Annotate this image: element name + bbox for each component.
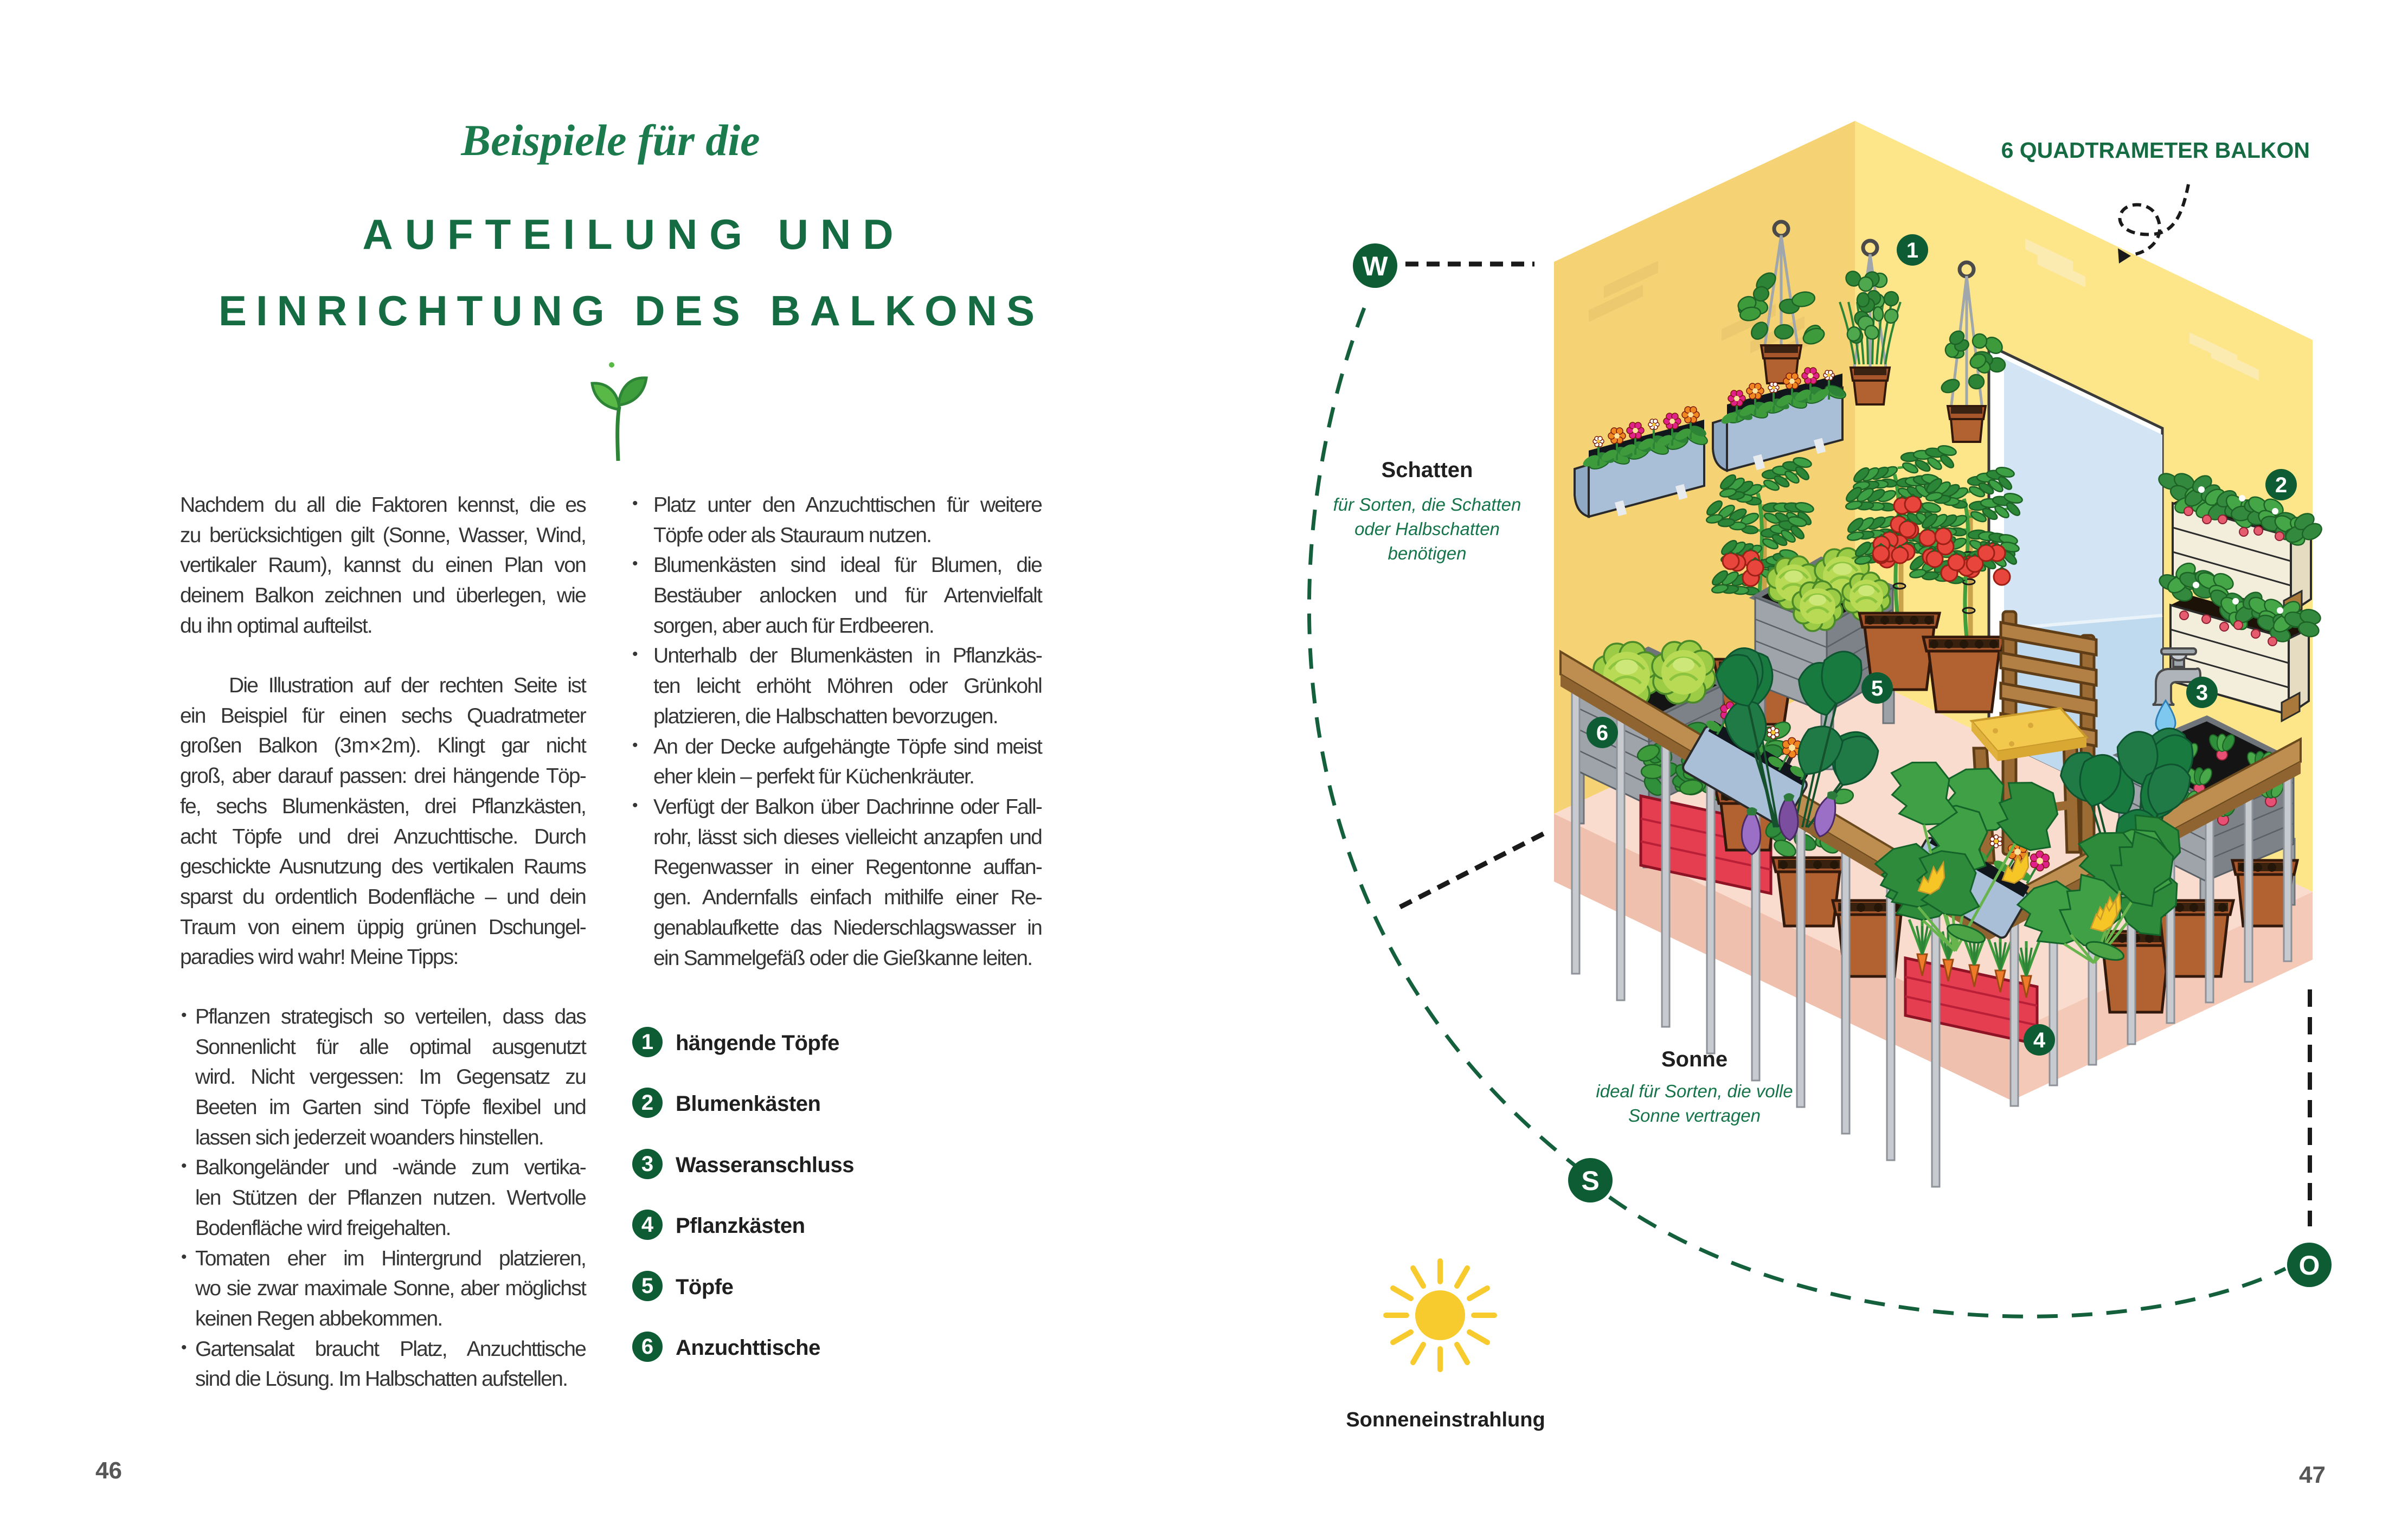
svg-text:W: W [1362,251,1388,281]
svg-text:1: 1 [1906,239,1918,262]
svg-text:2: 2 [2275,473,2287,497]
svg-text:4: 4 [2033,1028,2046,1052]
svg-text:O: O [2299,1250,2320,1281]
svg-text:5: 5 [1871,677,1883,700]
svg-text:6: 6 [1596,721,1608,745]
svg-text:S: S [1581,1166,1599,1196]
svg-text:3: 3 [2196,681,2208,705]
